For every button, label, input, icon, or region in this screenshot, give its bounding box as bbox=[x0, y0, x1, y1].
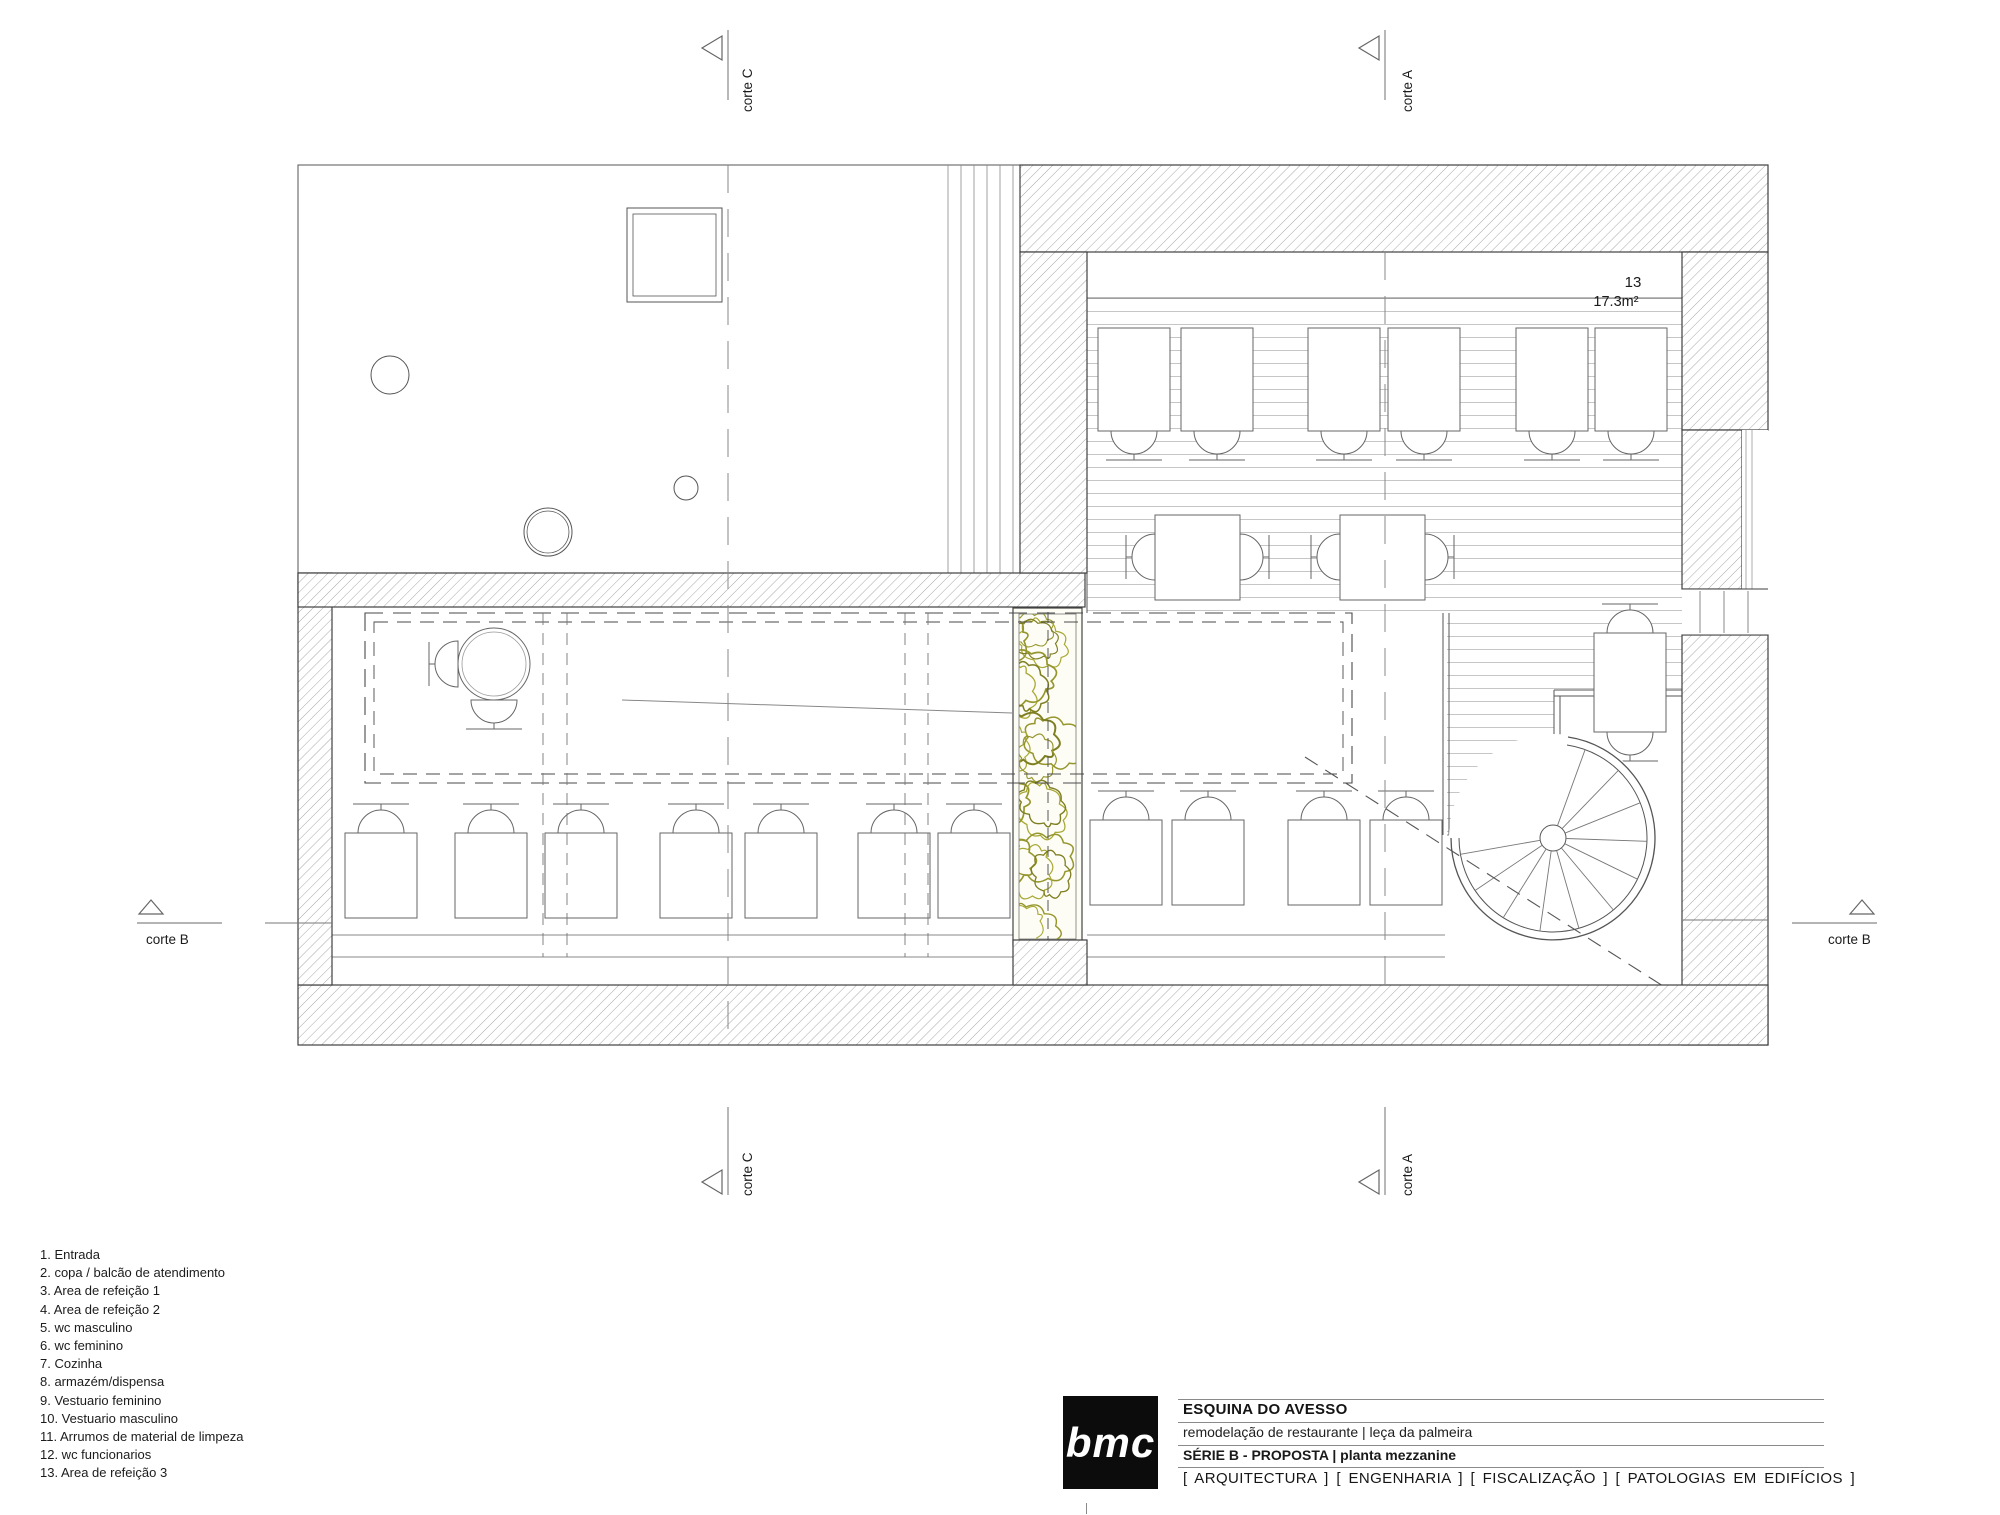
legend: 1. Entrada 2. copa / balcão de atendimen… bbox=[40, 1246, 244, 1483]
railing-edge bbox=[622, 700, 1012, 713]
section-arrow-icon bbox=[702, 36, 722, 60]
chair bbox=[466, 700, 522, 729]
bar-stool bbox=[1172, 820, 1244, 905]
dining-table bbox=[1388, 328, 1460, 431]
bar-stool bbox=[1090, 820, 1162, 905]
chair bbox=[429, 641, 458, 687]
floor-plan-mezzanine: 13 17.3m² bbox=[0, 0, 2000, 1515]
dining-table bbox=[1516, 328, 1588, 431]
titleblock-rule bbox=[1178, 1399, 1824, 1400]
corte-b-left-label: corte B bbox=[146, 932, 189, 947]
window bbox=[1682, 589, 1768, 635]
wall-right bbox=[1682, 430, 1742, 589]
corte-b-right-label: corte B bbox=[1828, 932, 1871, 947]
bar-stool bbox=[545, 833, 617, 918]
legend-item: 2. copa / balcão de atendimento bbox=[40, 1264, 244, 1282]
bar-counter bbox=[332, 935, 1445, 957]
wall-right bbox=[1682, 252, 1768, 430]
project-name: ESQUINA DO AVESSO bbox=[1183, 1401, 1348, 1418]
legend-item: 3. Area de refeição 1 bbox=[40, 1282, 244, 1300]
fold-mark bbox=[1086, 1503, 1087, 1514]
dining-table bbox=[1595, 328, 1667, 431]
round-table bbox=[458, 628, 530, 700]
legend-item: 7. Cozinha bbox=[40, 1355, 244, 1373]
void-room-outline bbox=[298, 165, 1020, 573]
section-arrow-icon bbox=[1359, 1170, 1379, 1194]
room13-area-label: 17.3m² bbox=[1593, 294, 1638, 310]
bar-stool bbox=[1370, 820, 1442, 905]
section-marker-corte-b-right bbox=[1792, 900, 1877, 923]
legend-item: 12. wc funcionarios bbox=[40, 1446, 244, 1464]
corte-a-bottom-label: corte A bbox=[1400, 1154, 1415, 1196]
bar-stool bbox=[1288, 820, 1360, 905]
dining-table bbox=[1594, 633, 1666, 732]
section-arrow-icon bbox=[702, 1170, 722, 1194]
slat-strip bbox=[948, 165, 1013, 573]
section-marker-corte-c-bottom bbox=[702, 1107, 728, 1195]
legend-item: 11. Arrumos de material de limpeza bbox=[40, 1428, 244, 1446]
skylight-square bbox=[627, 208, 722, 302]
dining-table bbox=[1308, 328, 1380, 431]
titleblock-rule bbox=[1178, 1467, 1824, 1468]
corte-c-top-label: corte C bbox=[740, 68, 755, 112]
wall-top bbox=[1020, 165, 1768, 252]
bar-stool bbox=[455, 833, 527, 918]
section-marker-corte-c-top bbox=[702, 30, 728, 100]
section-marker-corte-a-bottom bbox=[1359, 1107, 1385, 1195]
disciplines: [ ARQUITECTURA ] [ ENGENHARIA ] [ FISCAL… bbox=[1183, 1470, 1855, 1487]
bar-stool bbox=[858, 833, 930, 918]
wall-divider bbox=[1020, 252, 1087, 573]
titleblock-rule bbox=[1178, 1422, 1824, 1423]
section-arrow-icon bbox=[139, 900, 163, 914]
titleblock-rule bbox=[1178, 1445, 1824, 1446]
roof-circle bbox=[524, 508, 572, 556]
dining-table bbox=[1155, 515, 1240, 600]
wall-block bbox=[1013, 940, 1087, 985]
legend-item: 4. Area de refeição 2 bbox=[40, 1301, 244, 1319]
legend-item: 9. Vestuario feminino bbox=[40, 1392, 244, 1410]
section-marker-corte-a-top bbox=[1359, 30, 1385, 100]
spiral-staircase bbox=[1449, 734, 1657, 942]
dining-table bbox=[1340, 515, 1425, 600]
dining-table bbox=[1181, 328, 1253, 431]
void-room-features bbox=[371, 208, 722, 556]
wall-mid bbox=[298, 573, 1085, 607]
bar-stool bbox=[660, 833, 732, 918]
legend-item: 1. Entrada bbox=[40, 1246, 244, 1264]
round-table-group bbox=[429, 628, 530, 729]
corte-c-bottom-label: corte C bbox=[740, 1152, 755, 1196]
bar-stool bbox=[345, 833, 417, 918]
roof-circle bbox=[674, 476, 698, 500]
wall-right bbox=[1682, 635, 1768, 1045]
bar-area-furniture bbox=[332, 628, 1445, 957]
legend-item: 5. wc masculino bbox=[40, 1319, 244, 1337]
bmc-logo: bmc bbox=[1063, 1396, 1158, 1489]
section-arrow-icon bbox=[1359, 36, 1379, 60]
section-arrow-icon bbox=[1850, 900, 1874, 914]
project-description: remodelação de restaurante | leça da pal… bbox=[1183, 1424, 1472, 1440]
wall-bottom bbox=[298, 985, 1768, 1045]
legend-item: 8. armazém/dispensa bbox=[40, 1373, 244, 1391]
dining-table bbox=[1098, 328, 1170, 431]
drawing-phase: SÉRIE B - PROPOSTA | planta mezzanine bbox=[1183, 1447, 1456, 1463]
room13-number-label: 13 bbox=[1625, 274, 1642, 291]
legend-item: 6. wc feminino bbox=[40, 1337, 244, 1355]
legend-item: 10. Vestuario masculino bbox=[40, 1410, 244, 1428]
legend-item: 13. Area de refeição 3 bbox=[40, 1464, 244, 1482]
bar-stool bbox=[938, 833, 1010, 918]
roof-circle bbox=[371, 356, 409, 394]
section-marker-corte-b-left bbox=[137, 900, 222, 923]
corte-a-top-label: corte A bbox=[1400, 70, 1415, 112]
bar-stool bbox=[745, 833, 817, 918]
